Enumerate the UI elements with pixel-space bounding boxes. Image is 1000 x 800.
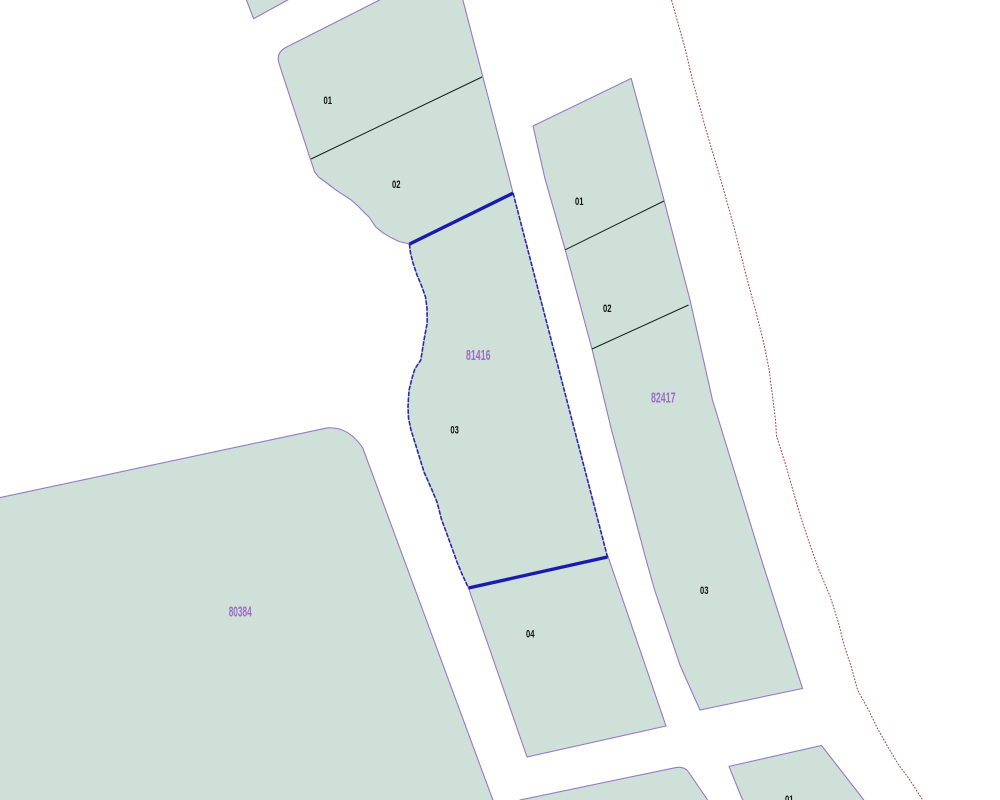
svg-text:03: 03 xyxy=(450,424,459,436)
svg-text:02: 02 xyxy=(603,303,612,315)
svg-text:01: 01 xyxy=(324,95,333,107)
svg-text:04: 04 xyxy=(526,629,535,641)
svg-text:02: 02 xyxy=(392,179,401,191)
svg-text:01: 01 xyxy=(785,794,794,800)
svg-text:03: 03 xyxy=(700,585,709,597)
svg-text:01: 01 xyxy=(575,196,584,208)
svg-text:81416: 81416 xyxy=(466,347,491,364)
svg-text:82417: 82417 xyxy=(651,390,676,407)
svg-text:80384: 80384 xyxy=(229,603,252,620)
